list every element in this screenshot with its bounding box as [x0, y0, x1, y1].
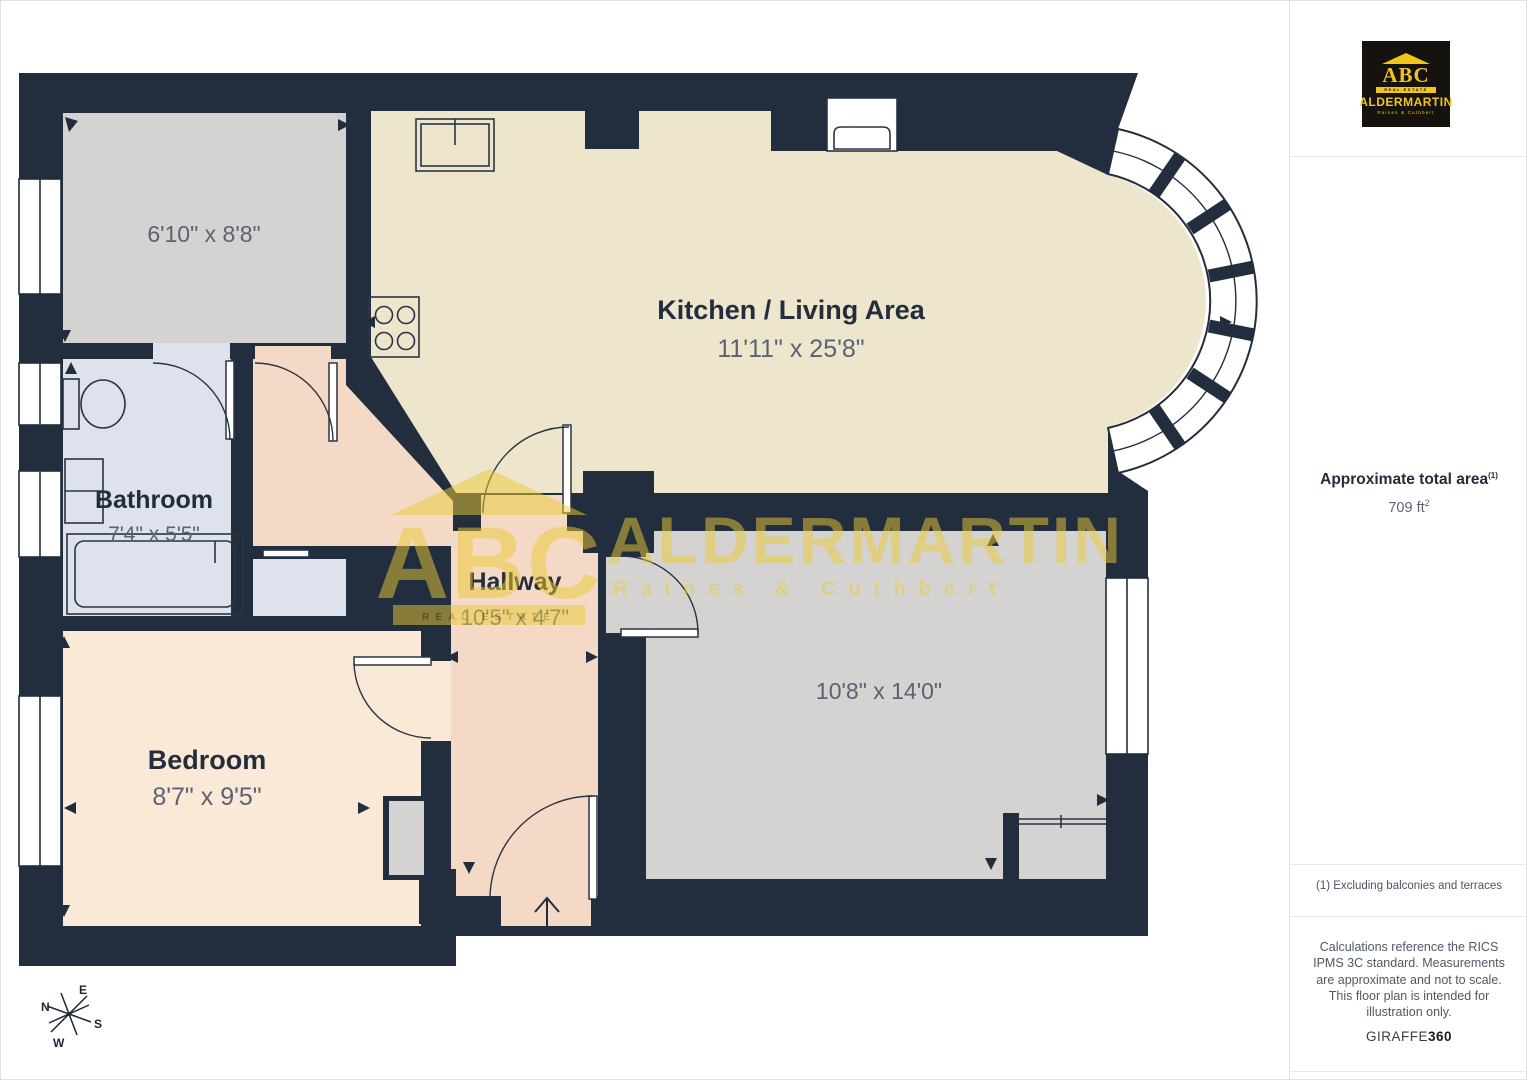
compass-w: W	[53, 1036, 65, 1050]
room-title: Bedroom	[148, 745, 267, 775]
room-dims: 7'4" x 5'5"	[108, 523, 200, 546]
total-area-label: Approximate total area(1)	[1290, 471, 1527, 489]
disclaimer-text: Calculations reference the RICS IPMS 3C …	[1309, 939, 1509, 1020]
info-sidebar: ABC REAL ESTATE ALDERMARTIN Raines & Cut…	[1289, 1, 1527, 1080]
door-leaf	[563, 425, 571, 513]
brand-logo: ABC REAL ESTATE ALDERMARTIN Raines & Cut…	[1362, 41, 1450, 127]
room-dims: 11'11" x 25'8"	[717, 335, 864, 363]
closet-door-leaf	[263, 550, 309, 557]
compass-e: E	[79, 983, 87, 997]
watermark-abc: ABC	[376, 506, 603, 620]
footnote-text: (1) Excluding balconies and terraces	[1290, 880, 1527, 892]
door-leaf	[621, 629, 698, 637]
fireplace-icon	[827, 98, 897, 151]
watermark-banner-text: REAL ESTATE	[422, 612, 556, 623]
room-dims: 6'10" x 8'8"	[147, 221, 260, 247]
sidebar-divider	[1290, 864, 1527, 865]
room-title: Kitchen / Living Area	[657, 295, 926, 325]
watermark-name: ALDERMARTIN	[607, 503, 1124, 577]
room-wc-closet	[253, 559, 346, 616]
sidebar-divider	[1290, 1071, 1527, 1072]
logo-abc-text: ABC	[1382, 65, 1429, 86]
total-area-value: 709 ft2	[1290, 498, 1527, 516]
compass-rose: N E S W	[41, 983, 102, 1050]
logo-sub-text: Raines & Cuthbert	[1377, 110, 1434, 115]
room-dims: 10'8" x 14'0"	[816, 678, 942, 704]
watermark-sub: Raines & Cuthbert	[613, 578, 1008, 600]
floor-plan-svg: 6'10" x 8'8" Kitchen / Living Area 11'11…	[1, 1, 1289, 1080]
logo-name-text: ALDERMARTIN	[1359, 95, 1453, 109]
room-title: Bathroom	[95, 486, 213, 514]
compass-n: N	[41, 1000, 50, 1014]
room-dims: 8'7" x 9'5"	[152, 783, 261, 811]
floor-plan: 6'10" x 8'8" Kitchen / Living Area 11'11…	[1, 1, 1289, 1080]
compass-s: S	[94, 1017, 102, 1031]
door-leaf	[354, 657, 431, 665]
door-leaf	[226, 361, 234, 439]
logo-banner-text: REAL ESTATE	[1376, 87, 1436, 93]
total-area-block: Approximate total area(1) 709 ft2	[1290, 471, 1527, 516]
door-leaf	[329, 363, 337, 441]
sidebar-divider	[1290, 156, 1527, 157]
floorplan-page: 6'10" x 8'8" Kitchen / Living Area 11'11…	[0, 0, 1527, 1080]
room-bedroom	[63, 631, 421, 926]
giraffe360-brand: GIRAFFE360	[1290, 1029, 1527, 1044]
sidebar-divider	[1290, 916, 1527, 917]
door-leaf	[589, 796, 597, 899]
